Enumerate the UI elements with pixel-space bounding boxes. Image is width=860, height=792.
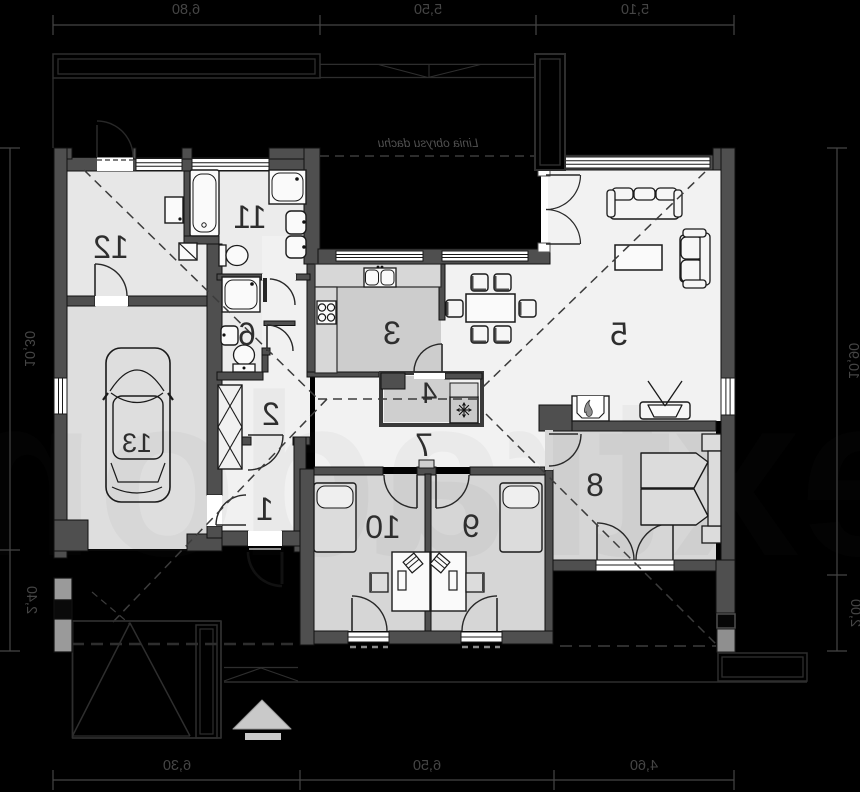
svg-text:2,00: 2,00	[847, 599, 860, 627]
svg-text:1: 1	[256, 491, 274, 527]
svg-text:10: 10	[365, 509, 401, 545]
svg-text:10,30: 10,30	[21, 331, 37, 367]
svg-text:5,10: 5,10	[621, 2, 649, 18]
svg-text:4,60: 4,60	[630, 758, 658, 774]
svg-text:8: 8	[586, 467, 604, 503]
svg-text:3: 3	[383, 315, 401, 351]
svg-text:6,50: 6,50	[413, 758, 441, 774]
svg-text:2: 2	[262, 396, 280, 432]
svg-text:5: 5	[610, 316, 628, 352]
svg-text:6,30: 6,30	[163, 758, 191, 774]
svg-text:6,80: 6,80	[172, 2, 200, 18]
svg-text:2,40: 2,40	[23, 586, 39, 614]
svg-text:12: 12	[93, 229, 129, 265]
svg-text:4: 4	[421, 377, 438, 410]
svg-text:Linia obrysu dachu: Linia obrysu dachu	[377, 136, 478, 150]
svg-text:9: 9	[462, 508, 480, 544]
svg-text:13: 13	[122, 428, 152, 458]
svg-text:10,90: 10,90	[845, 343, 860, 379]
svg-text:11: 11	[233, 199, 266, 235]
svg-text:7: 7	[415, 427, 433, 463]
svg-text:6: 6	[238, 316, 256, 352]
svg-text:5,50: 5,50	[414, 2, 442, 18]
